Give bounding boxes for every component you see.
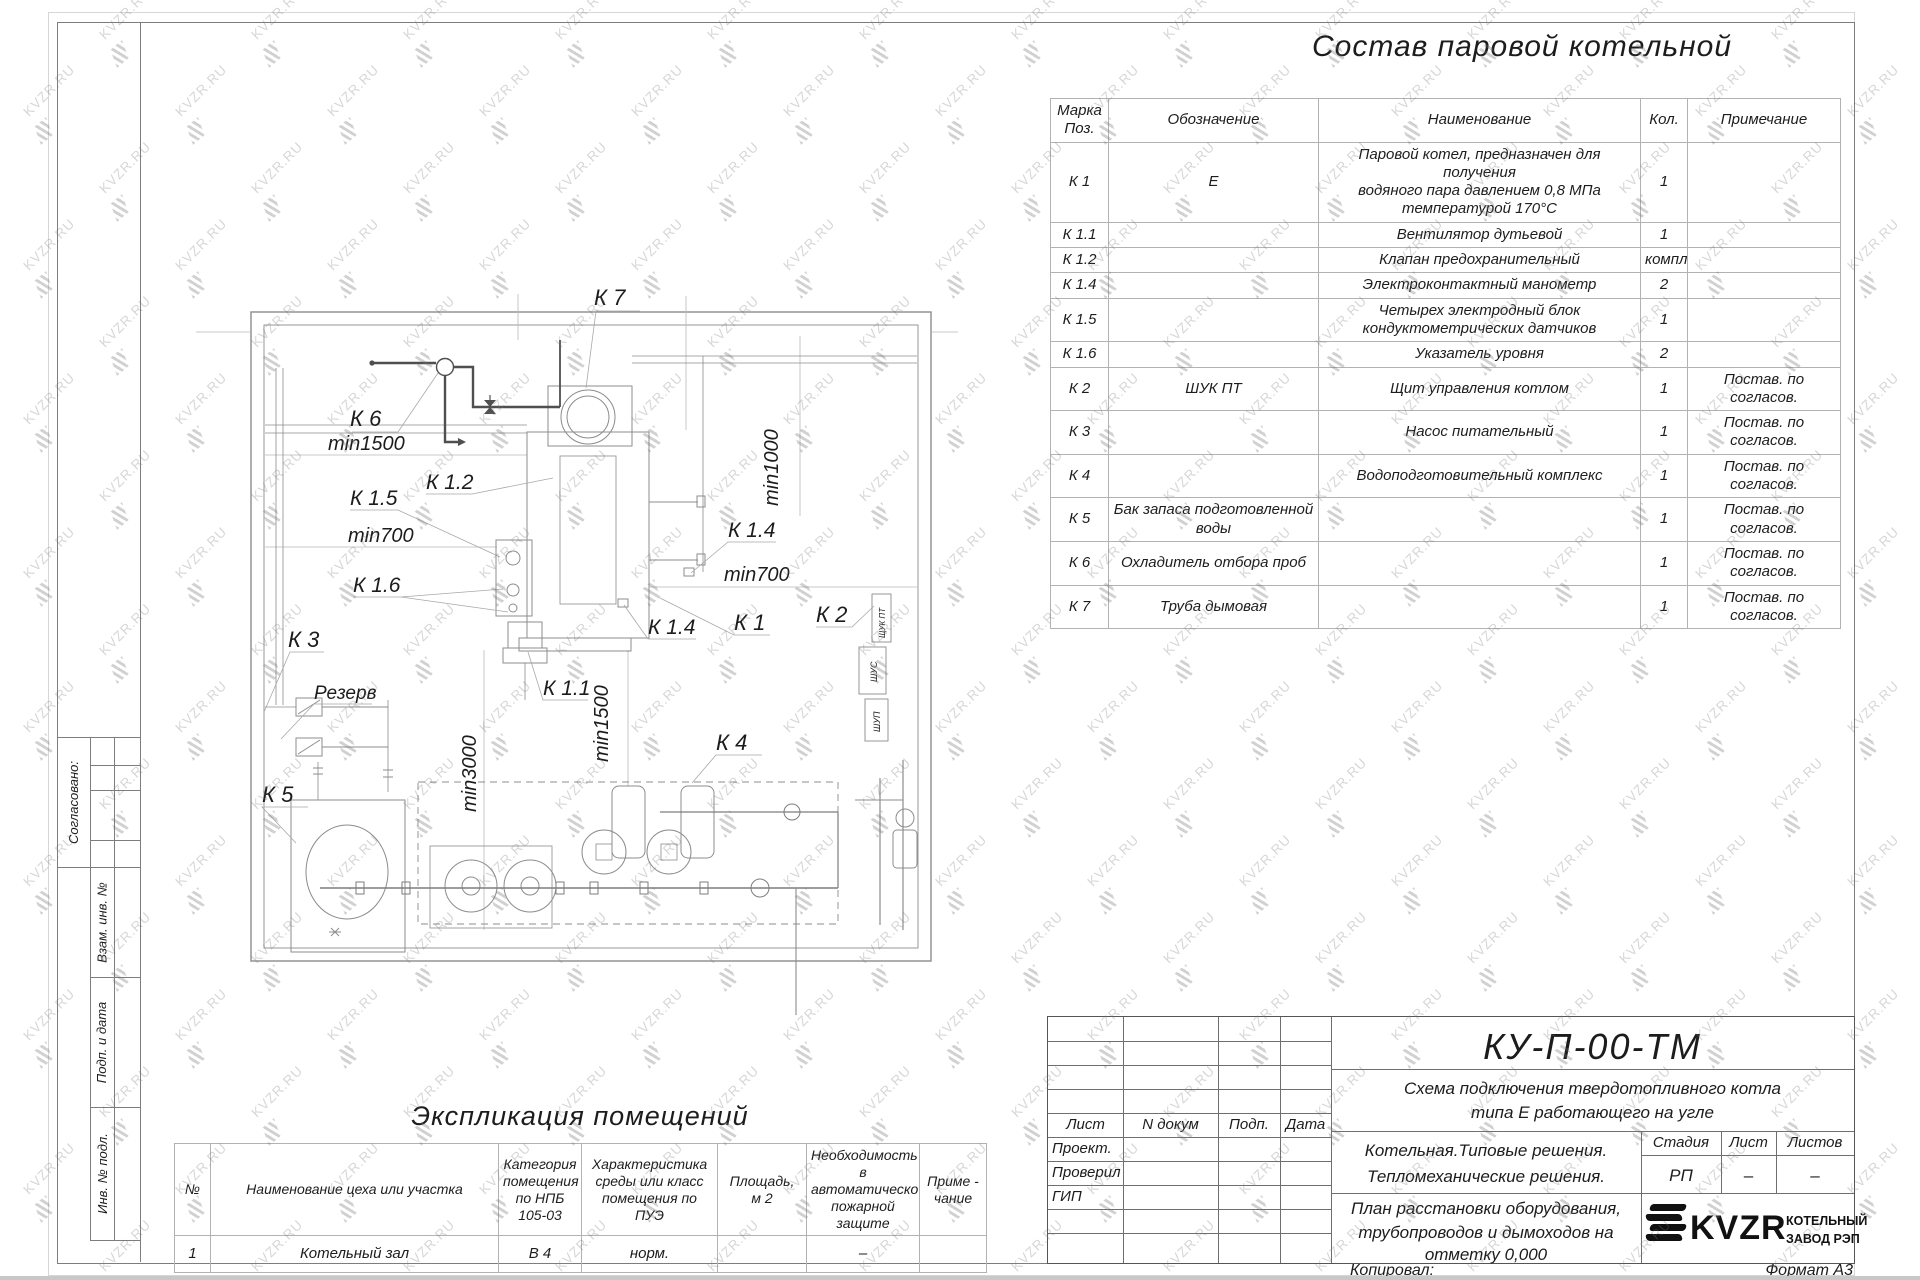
- col-data: Дата: [1280, 1116, 1331, 1134]
- project-line2: Тепломеханические решения.: [1331, 1167, 1641, 1187]
- sheet-name-line1: План расстановки оборудования,: [1331, 1199, 1641, 1219]
- kvzr-logo-text: KVZR: [1690, 1211, 1787, 1245]
- stage-value: РП: [1641, 1166, 1721, 1186]
- plan-label: min1500: [591, 685, 613, 762]
- sheet-header: Лист: [1721, 1134, 1776, 1152]
- scheme-title-line1: Схема подключения твердотопливного котла: [1331, 1079, 1854, 1099]
- paper-bottom-edge: [0, 1276, 1920, 1280]
- sheet-value: –: [1721, 1166, 1776, 1186]
- plan-label: К 3: [288, 627, 320, 652]
- role-checked: Проверил: [1052, 1164, 1121, 1182]
- feed-piping: [320, 804, 838, 897]
- plan-label: К 1.2: [426, 471, 474, 494]
- plan-label: min1500: [328, 433, 405, 455]
- doc-code: КУ-П-00-ТМ: [1331, 1029, 1854, 1065]
- plan-label: К 1.6: [353, 574, 401, 597]
- plan-label: К 4: [716, 730, 747, 755]
- plan-label: ШУП: [872, 711, 882, 732]
- col-ndocum: N докум: [1123, 1116, 1218, 1134]
- plan-label: min700: [348, 525, 414, 547]
- scheme-title-line2: типа Е работающего на угле: [1331, 1103, 1854, 1123]
- title-block: Лист N докум Подп. Дата Проект. Проверил…: [1047, 1016, 1855, 1264]
- logo-caption-line2: ЗАВОД РЭП: [1786, 1231, 1860, 1247]
- project-line1: Котельная.Типовые решения.: [1331, 1141, 1641, 1161]
- stage-header: Стадия: [1641, 1134, 1721, 1152]
- plan-label: К 1: [734, 610, 765, 635]
- steam-piping: [369, 340, 560, 446]
- role-project: Проект.: [1052, 1140, 1112, 1158]
- plan-label: К 7: [594, 285, 626, 310]
- plan-label: К 1.1: [543, 677, 590, 700]
- plan-label: К 1.5: [350, 487, 398, 510]
- sheets-value: –: [1776, 1166, 1854, 1186]
- plan-label: К 1.4: [648, 616, 695, 639]
- plan-labels: К 7К 6min1500К 1.2К 1.5min700К 1.6К 3Рез…: [262, 285, 887, 812]
- plan-label: ШУС: [869, 661, 879, 682]
- plan-label: ЩУК ПТ: [878, 607, 887, 638]
- logo-caption-line1: КОТЕЛЬНЫЙ: [1786, 1213, 1867, 1229]
- col-podp: Подп.: [1218, 1116, 1280, 1134]
- plan-label: К 5: [262, 782, 294, 807]
- plan-label: Резерв: [314, 683, 377, 704]
- kvzr-logo-icon: [1648, 1201, 1684, 1247]
- plan-label: К 1.4: [728, 519, 775, 542]
- plan-label: min700: [724, 564, 790, 586]
- plan-label: min3000: [459, 735, 481, 812]
- plan-label: К 2: [816, 602, 847, 627]
- plan-label: min1000: [761, 429, 783, 506]
- sheet-name-line2: трубопроводов и дымоходов на: [1331, 1223, 1641, 1243]
- sheets-header: Листов: [1776, 1134, 1854, 1152]
- role-gip: ГИП: [1052, 1188, 1082, 1206]
- col-list: Лист: [1048, 1116, 1123, 1134]
- plan-label: К 6: [350, 406, 382, 431]
